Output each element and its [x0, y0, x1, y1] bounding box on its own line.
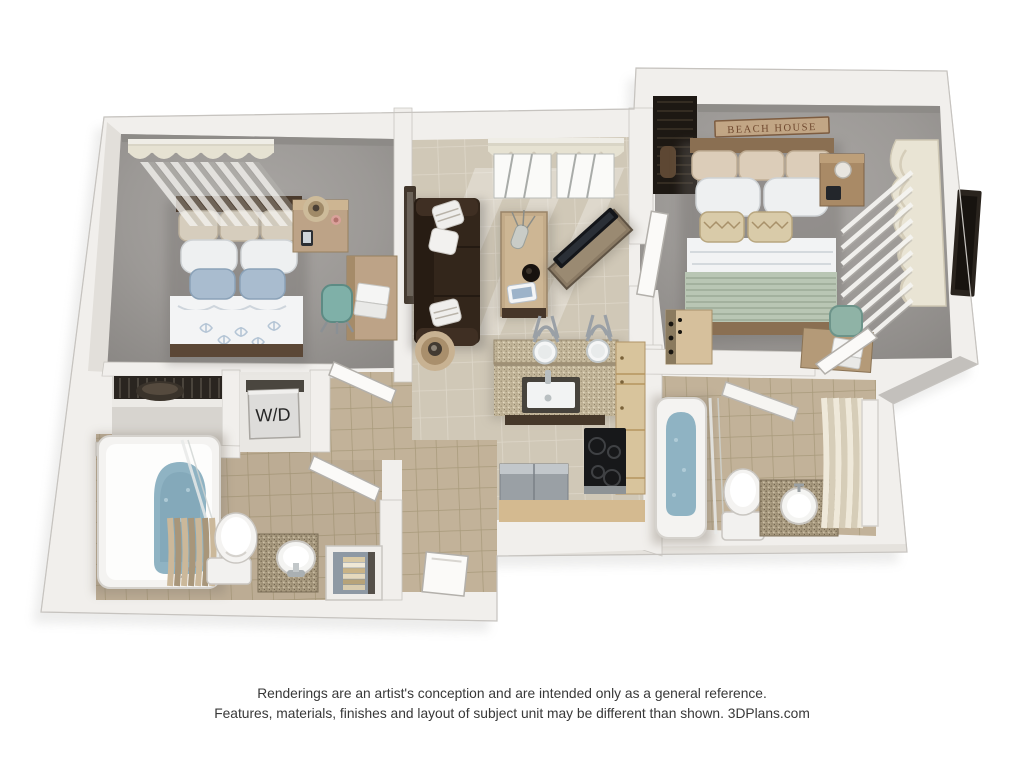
- svg-text:W/D: W/D: [255, 404, 291, 425]
